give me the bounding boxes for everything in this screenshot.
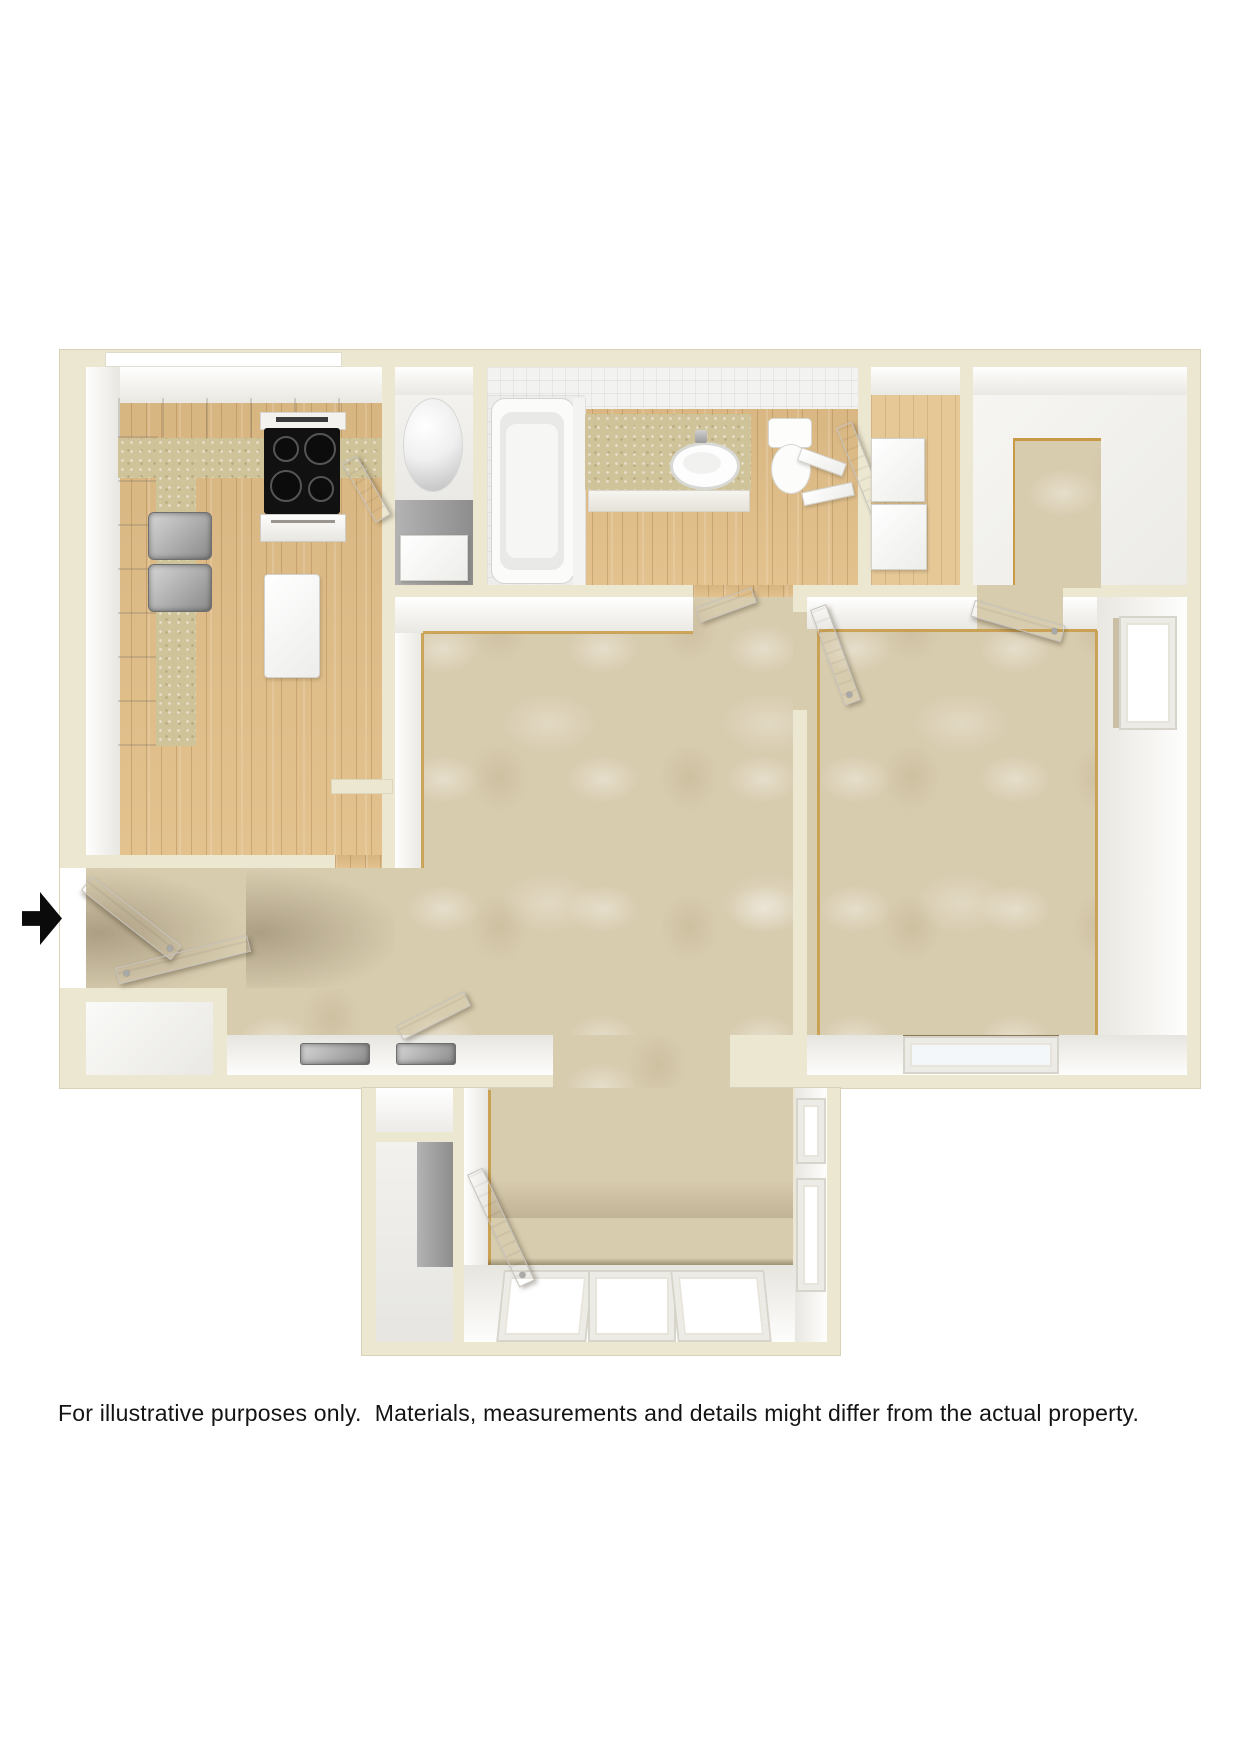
sink-basin: [148, 564, 212, 612]
coat-closet-floor: [86, 1002, 213, 1075]
bathtub: [491, 398, 575, 584]
bedroom-closet-room-top-wall-face: [973, 367, 1187, 395]
hall-closet-top-wall-face: [871, 367, 960, 395]
closet-door-threshold: [977, 585, 1063, 597]
living-room-left-wall-face: [395, 633, 423, 868]
hall-bottom-wall-face: [227, 1035, 553, 1075]
vanity-sink: [670, 442, 740, 490]
bedroom1-bottom-window: [905, 1038, 1057, 1072]
burner-icon: [270, 470, 302, 502]
entry-arrow-icon: [22, 892, 62, 945]
oven-handle: [271, 520, 335, 523]
utility-closet-top-wall-face: [395, 367, 473, 395]
closet-shelf-box: [871, 438, 925, 502]
utility-shelf-box: [400, 535, 468, 581]
double-sink: [148, 512, 212, 610]
bedroom2-bottom-window: [498, 1272, 591, 1340]
floor-plan-page: For illustrative purposes only. Material…: [0, 0, 1240, 1754]
carpet-tack-strip: [488, 1090, 491, 1265]
bedroom2-bottom-window: [672, 1272, 769, 1340]
bedroom1-carpet: [807, 597, 1097, 1035]
bedroom2-carpet: [488, 1088, 793, 1265]
bedroom-closet-carpet: [1013, 438, 1101, 588]
sink-bowl: [683, 452, 721, 474]
wall-vent: [396, 1043, 456, 1065]
kitchen-entry-threshold: [335, 855, 382, 868]
bedroom1-door-threshold: [793, 612, 807, 710]
range-hood-vent-slot: [276, 417, 328, 422]
window-sill: [1113, 618, 1121, 728]
dining-wall-stub: [332, 780, 392, 793]
vanity-cabinet-front: [588, 490, 750, 512]
burner-icon: [273, 436, 299, 462]
entry-door-opening: [60, 868, 86, 988]
bedroom2-side-window: [798, 1100, 824, 1162]
disclaimer-text: For illustrative purposes only. Material…: [58, 1400, 1139, 1427]
bedroom2-bottom-window: [590, 1272, 674, 1340]
kitchen-island: [264, 574, 320, 678]
kitchen-left-wall-face: [86, 367, 120, 855]
carpet-tack-strip: [817, 631, 820, 1035]
water-heater: [403, 398, 463, 492]
hallway-carpet: [553, 1035, 730, 1088]
living-room-carpet: [395, 597, 793, 1035]
bedroom1-side-window: [1121, 618, 1175, 728]
entry-hall-carpet: [227, 988, 395, 1035]
burner-icon: [304, 433, 336, 465]
carpet-tack-strip: [421, 633, 424, 868]
carpet-tack-strip: [423, 631, 693, 634]
carpet-tack-strip: [1095, 631, 1098, 1035]
living-room-top-wall-face: [395, 597, 693, 633]
faucet-icon: [695, 430, 707, 443]
bedroom2-side-window: [798, 1180, 824, 1290]
oven-front: [260, 514, 346, 542]
kitchen-window: [105, 352, 342, 367]
sink-basin: [148, 512, 212, 560]
closet-shelf-box: [871, 504, 927, 570]
burner-icon: [308, 476, 334, 502]
bathtub-basin: [506, 424, 558, 558]
wall-vent: [300, 1043, 370, 1065]
stove-cooktop: [264, 428, 340, 514]
wing-closet2-back-wall: [417, 1142, 453, 1267]
wing-closet1-floor: [376, 1088, 453, 1132]
